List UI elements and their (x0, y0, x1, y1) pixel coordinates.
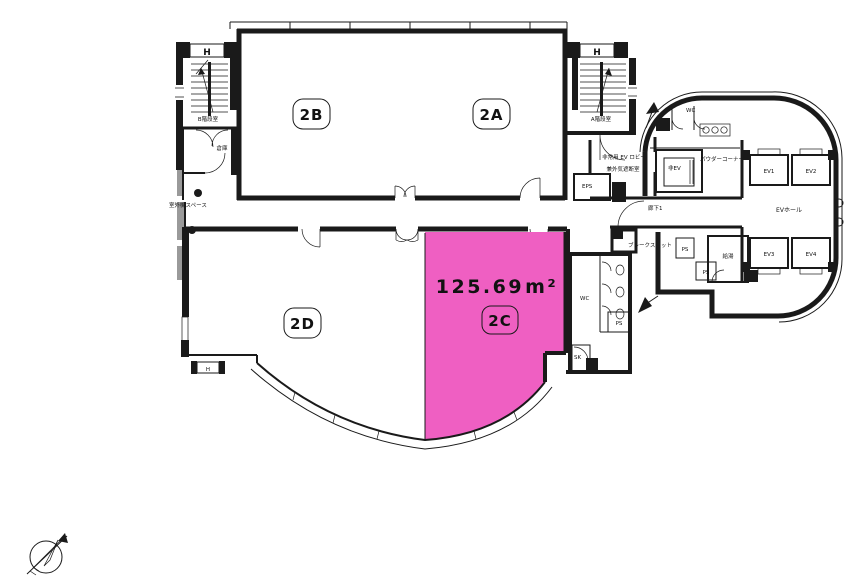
room-2b-2a: 2B 2A (237, 29, 567, 200)
hatch-mark-right: H (593, 48, 601, 58)
stair-b-label: B階段室 (198, 115, 219, 123)
stairwell-a: H A階段室 (565, 42, 637, 160)
emergency-elevator: 非EV (656, 150, 702, 192)
ev-lobby-label-1: 非常用 EV ロビー (602, 153, 646, 161)
ps-b-label: PS (703, 270, 710, 276)
wc-mid-block: PS WC SK (566, 229, 632, 372)
outdoor-units-label: 室外機スペース (169, 201, 207, 209)
floor-plan-canvas: 室外機スペース 2B 2A H B階段室 (0, 0, 857, 587)
emergency-ev-label: 非EV (668, 164, 681, 172)
room-2b-label: 2B (300, 106, 324, 124)
ev2-label: EV2 (806, 169, 817, 175)
escape-arrow-south (638, 296, 658, 313)
elevator-hall: EV1 EV2 EV3 EV4 EVホール (742, 140, 843, 282)
break-spot-label: ブレークスポット (628, 241, 672, 249)
floor-plan-drawing: 室外機スペース 2B 2A H B階段室 (0, 0, 857, 587)
room-2d-label: 2D (290, 315, 315, 333)
ev3-label: EV3 (764, 252, 775, 258)
room-2c-highlight (425, 232, 566, 440)
compass-rose (27, 533, 68, 575)
stairwell-b: H B階段室 倉庫 (175, 42, 238, 200)
kitchenette-area: 給湯 PS PS (676, 236, 758, 282)
kitchenette-label: 給湯 (722, 252, 734, 260)
ev-lobby-label-2: 兼外気遮断室 (606, 165, 640, 173)
room-2c-label: 2C (488, 312, 511, 330)
hatch-mark-left: H (203, 48, 211, 58)
ps-a-label: PS (682, 247, 689, 253)
balcony-edge-line (230, 22, 567, 29)
room-2c: 125.69m² 2C (425, 232, 566, 440)
room-2a-label: 2A (479, 106, 503, 124)
ev4-label: EV4 (806, 252, 817, 258)
room-2d: H 2D (181, 227, 321, 374)
powder-corner-label: パウダーコーナー (700, 155, 744, 163)
storage-label: 倉庫 (216, 144, 228, 152)
room-2c-area: 125.69m² (436, 276, 558, 298)
sk-label: SK (574, 355, 581, 361)
hatch-mark-bottom: H (206, 367, 210, 373)
stair-a-label: A階段室 (591, 115, 612, 123)
ps-mid-label: PS (616, 321, 623, 327)
wc-mid-label: WC (580, 296, 589, 302)
eps-label: EPS (582, 184, 593, 190)
corridor1-label: 廊下1 (648, 204, 663, 212)
east-wing: WC 非EV パウダーコーナー EV1 EV2 (638, 92, 843, 322)
ev-hall-label: EVホール (776, 207, 802, 214)
ev1-label: EV1 (764, 169, 775, 175)
